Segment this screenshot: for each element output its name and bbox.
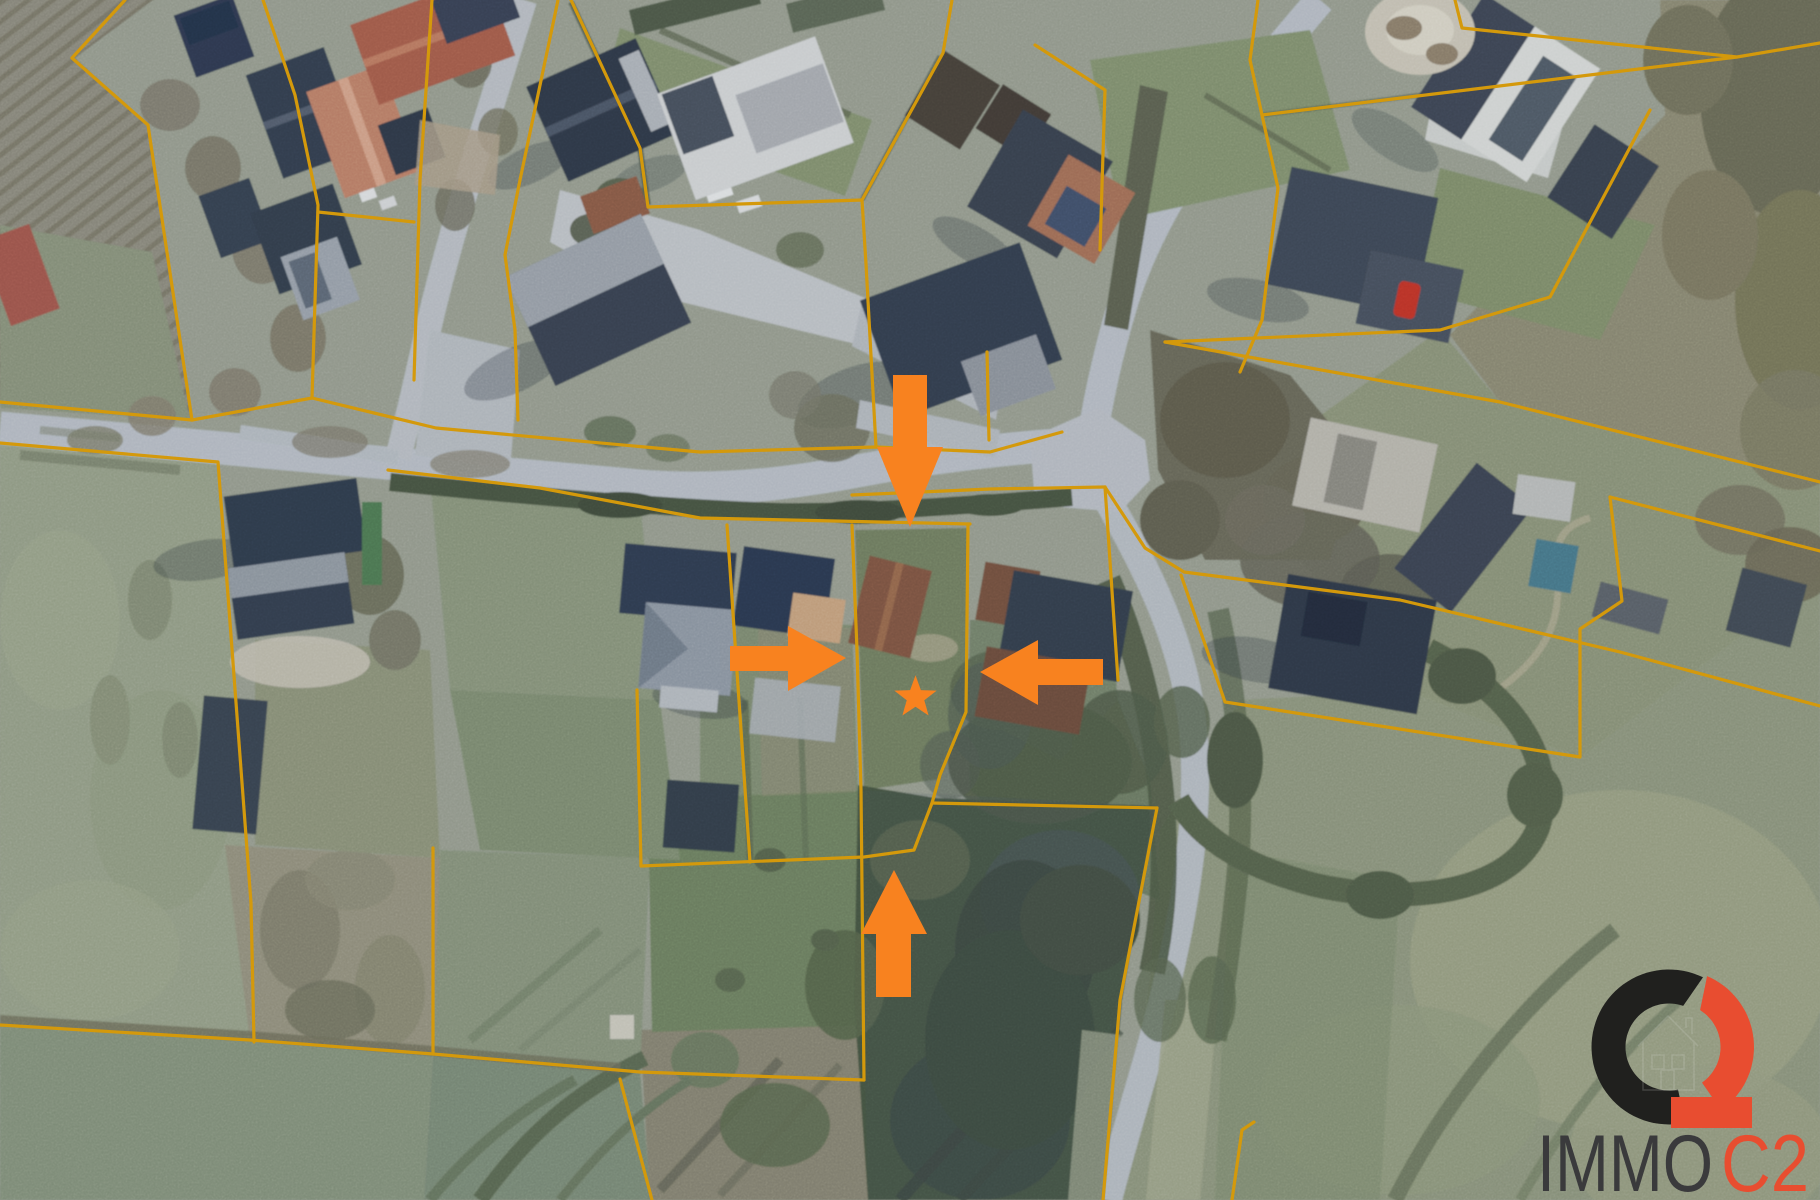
svg-text:C2: C2 <box>1721 1119 1809 1200</box>
svg-text:IMMO: IMMO <box>1537 1119 1713 1200</box>
